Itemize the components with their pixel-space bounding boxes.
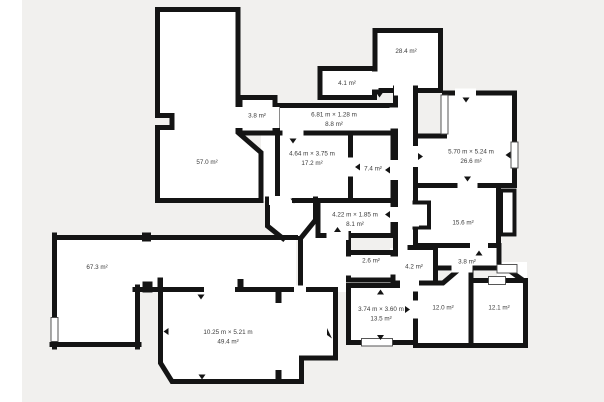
- window-icon: [362, 339, 393, 347]
- window-icon: [497, 265, 517, 274]
- room-label: 4.2 m²: [405, 264, 423, 271]
- room-label: 12.0 m²: [432, 305, 453, 312]
- room-label: 8.8 m²: [325, 121, 343, 128]
- room-label: 12.1 m²: [488, 305, 509, 312]
- room-label: 7.4 m²: [364, 166, 382, 173]
- room-12-1[interactable]: [471, 281, 526, 346]
- room-label: 6.81 m × 1.28 m: [311, 112, 357, 119]
- room-label: 4.22 m × 1.85 m: [332, 212, 378, 219]
- floor-plan: 28.4 m² 4.1 m² 3.8 m² 6.81 m × 1.28 m 8.…: [0, 0, 604, 402]
- room-label: 10.25 m × 5.21 m: [203, 329, 252, 336]
- window-icon: [511, 142, 518, 168]
- room-label: 3.8 m²: [458, 259, 476, 266]
- room-label: 17.2 m²: [301, 160, 322, 167]
- room-label: 4.1 m²: [338, 80, 356, 87]
- window-icon: [441, 95, 448, 134]
- window-icon: [489, 277, 506, 285]
- room-label: 5.70 m × 5.24 m: [448, 149, 494, 156]
- room-label: 3.74 m × 3.60 m: [358, 306, 404, 313]
- room-label: 49.4 m²: [217, 339, 238, 346]
- room-label: 28.4 m²: [395, 48, 416, 55]
- floor-plan-canvas: 28.4 m² 4.1 m² 3.8 m² 6.81 m × 1.28 m 8.…: [0, 0, 604, 402]
- room-label: 57.0 m²: [196, 159, 217, 166]
- room-label: 15.6 m²: [452, 220, 473, 227]
- room-label: 2.6 m²: [362, 258, 380, 265]
- room-label: 26.6 m²: [460, 158, 481, 165]
- room-label: 13.5 m²: [370, 316, 391, 323]
- room-label: 3.8 m²: [248, 113, 266, 120]
- room-label: 4.64 m × 3.75 m: [289, 151, 335, 158]
- window-icon: [51, 318, 58, 342]
- room-28-4[interactable]: [375, 31, 441, 91]
- room-label: 67.3 m²: [86, 264, 107, 271]
- room-label: 8.1 m²: [346, 221, 364, 228]
